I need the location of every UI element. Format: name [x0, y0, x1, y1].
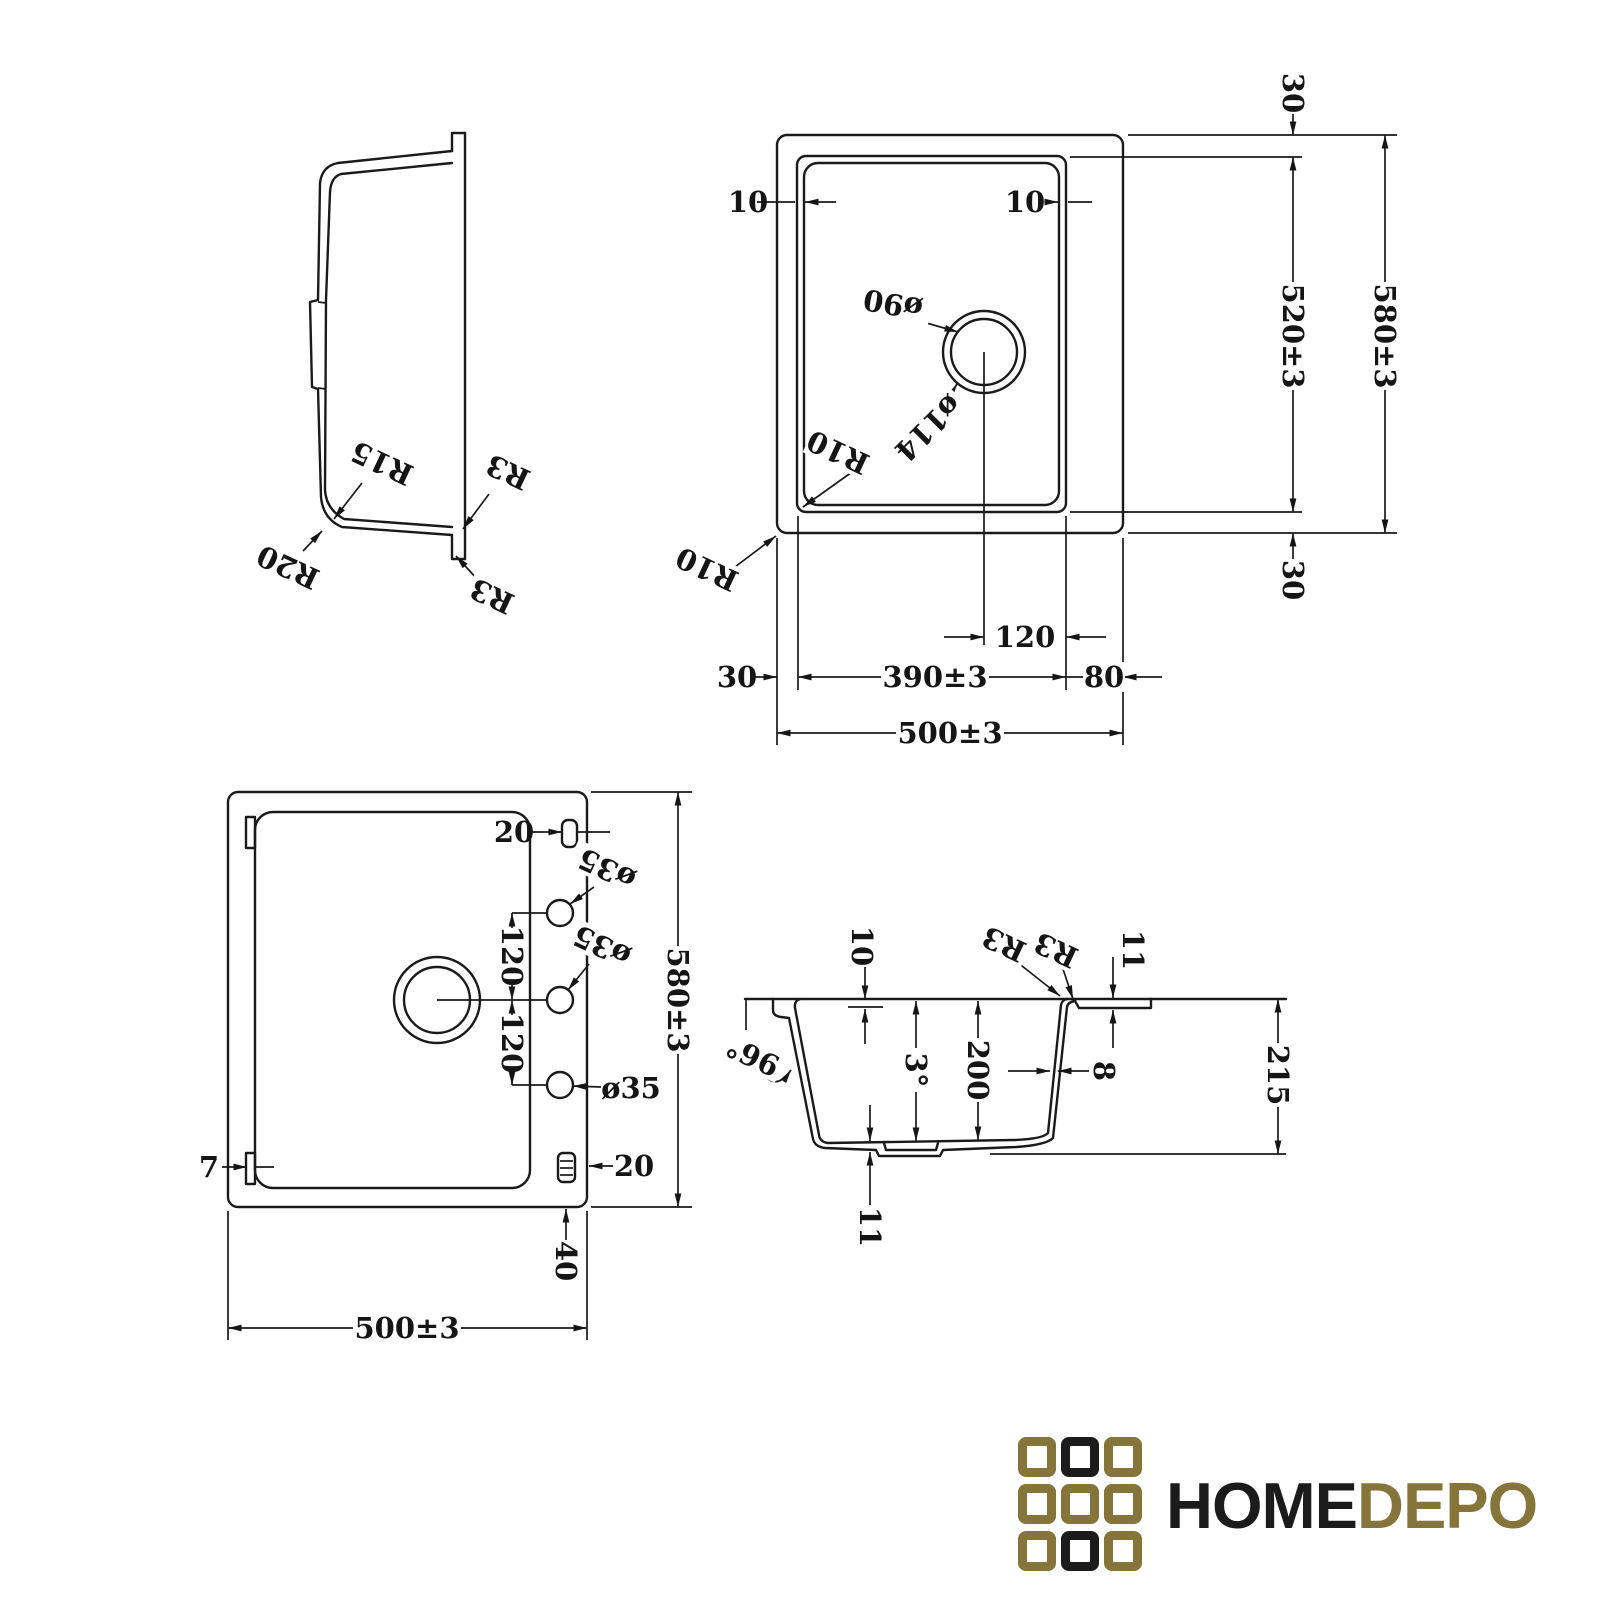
- dim-overall-depth-bottom: 580±3: [661, 792, 695, 1207]
- dim-tap-hole-mid: ø35: [560, 915, 643, 990]
- dim-overall-height: 215: [1261, 999, 1295, 1154]
- logo-text-home: HOME: [1166, 1469, 1357, 1542]
- logo-grid-cell-gold: [1061, 1484, 1099, 1524]
- top-lip-right-label: 10: [1005, 185, 1045, 219]
- overflow-slot-bottom: [558, 1153, 575, 1182]
- dim-drain-dia: ø90: [853, 281, 958, 332]
- section-outline: [745, 999, 1286, 1156]
- top-rim-top-label: 30: [1276, 73, 1310, 113]
- dim-ledge: 40: [549, 1209, 583, 1282]
- section-bowl-depth-label: 200: [961, 1040, 995, 1101]
- dim-r3-bottom: R3: [456, 556, 522, 622]
- view-bottom: 20 ø35 ø35 120 120 ø35: [195, 780, 705, 1355]
- top-flange-dia-label: ø114: [888, 388, 969, 469]
- side-r20-label: R20: [252, 538, 325, 596]
- section-rim-thickness-label: 11: [1116, 930, 1150, 970]
- clip-tab-bottom: [246, 1153, 255, 1184]
- top-drain-dia-label: ø90: [861, 282, 926, 326]
- dim-rim-bottom: 30: [1276, 533, 1310, 601]
- dim-r15: R15: [334, 434, 418, 519]
- dim-bowl-depth-section: 200: [961, 1001, 995, 1140]
- dim-drain-offset: 120: [944, 620, 1106, 654]
- top-overall-width-label: 500±3: [897, 716, 1002, 750]
- logo-grid-icon: [1018, 1437, 1142, 1573]
- bottom-hole-pitch-2-label: 120: [495, 1013, 529, 1074]
- logo-grid-cell-gold: [1104, 1531, 1142, 1571]
- side-profile-outline: [310, 133, 465, 559]
- view-top: 10 10 ø90 ø114 R10 R10: [695, 60, 1410, 775]
- dim-r3-top: R3: [463, 446, 538, 529]
- top-rim-bottom-label: 30: [1276, 560, 1310, 600]
- dim-wall-thickness: 8: [1008, 1057, 1121, 1085]
- dim-r20: R20: [252, 531, 325, 596]
- dim-hole-pitch-2: 120: [495, 1000, 529, 1085]
- section-lip-drop-label: 10: [845, 926, 879, 966]
- top-overall-depth-label: 580±3: [1368, 283, 1402, 388]
- top-rim-right-label: 80: [1084, 660, 1124, 694]
- logo-grid-cell-black: [1061, 1531, 1099, 1571]
- bottom-slot-bottom-label: 20: [614, 1149, 654, 1183]
- logo-wordmark: HOMEDEPO: [1166, 1468, 1537, 1543]
- section-draft-angle-label: 3°: [899, 1053, 933, 1088]
- logo: HOMEDEPO: [1018, 1437, 1537, 1573]
- side-r15-label: R15: [346, 434, 419, 492]
- top-view-extension-lines: [777, 135, 1397, 745]
- logo-grid-cell-gold: [1018, 1437, 1056, 1477]
- view-side-profile: R15 R20 R3 R3: [230, 100, 550, 640]
- dim-rim-thickness: 11: [1113, 929, 1150, 1048]
- bottom-overall-depth-label: 580±3: [661, 947, 695, 1052]
- dim-lip-left: 10: [728, 185, 836, 219]
- section-bottom-thickness-label: 11: [853, 1207, 887, 1247]
- bottom-view-outline: [228, 792, 587, 1207]
- top-rim-left-label: 30: [717, 660, 757, 694]
- dim-slot-bottom: 20: [589, 1149, 654, 1183]
- dim-bowl-width: 390±3: [798, 660, 1123, 694]
- logo-grid-cell-gold: [1104, 1484, 1142, 1524]
- dim-bottom-thickness: 11: [853, 1105, 887, 1248]
- dim-r10-outer: R10: [671, 536, 776, 598]
- bottom-slot-top-label: 20: [494, 815, 534, 849]
- dim-overall-width: 500±3: [777, 716, 1123, 750]
- dim-overall-width-bottom: 500±3: [228, 1311, 587, 1345]
- tap-hole-mid: [547, 987, 573, 1013]
- dim-r10-inner: R10: [802, 423, 875, 507]
- tap-hole-bottom: [547, 1072, 573, 1098]
- top-lip-left-label: 10: [728, 185, 768, 219]
- logo-grid-cell-gold: [1018, 1531, 1056, 1571]
- dim-clip: 7: [199, 1150, 274, 1184]
- bottom-tap-hole-bottom-label: ø35: [601, 1071, 661, 1105]
- logo-text-depo: DEPO: [1357, 1469, 1537, 1542]
- top-bowl-width-label: 390±3: [882, 660, 987, 694]
- bottom-overall-width-label: 500±3: [354, 1311, 459, 1345]
- clip-tab-top: [246, 817, 255, 848]
- dim-tap-hole-top: ø35: [565, 838, 648, 904]
- logo-grid-cell-gold: [1104, 1437, 1142, 1477]
- dim-bowl-depth: 520±3: [1276, 157, 1310, 512]
- section-overall-height-label: 215: [1261, 1045, 1295, 1106]
- dim-flange-dia: ø114: [885, 384, 971, 471]
- dim-lip-right: 10: [1005, 185, 1092, 219]
- dim-r3-inner: R3: [1026, 924, 1086, 999]
- dim-hole-pitch-1: 120: [495, 913, 529, 1000]
- top-drain-offset-label: 120: [995, 620, 1056, 654]
- dim-wall-angle: 96°: [718, 1027, 791, 1084]
- view-section: 10 R3 R3 11 96° 3°: [715, 900, 1305, 1260]
- sink-technical-drawing: R15 R20 R3 R3: [0, 0, 1600, 1600]
- top-bowl-depth-label: 520±3: [1276, 283, 1310, 388]
- dim-rim-left: 30: [717, 660, 777, 694]
- dim-rim-right: 80: [1083, 660, 1162, 694]
- section-wall-thickness-label: 8: [1087, 1061, 1121, 1081]
- top-r10-inner-label: R10: [802, 423, 875, 481]
- logo-grid-cell-gold: [1018, 1484, 1056, 1524]
- dim-draft-angle: 3°: [899, 1001, 933, 1141]
- logo-grid-cell-black: [1061, 1437, 1099, 1477]
- tap-hole-top: [547, 900, 573, 926]
- overflow-slot-top: [562, 820, 577, 847]
- dim-overall-depth: 580±3: [1368, 135, 1402, 533]
- dim-rim-top: 30: [1276, 72, 1310, 135]
- top-r10-outer-label: R10: [671, 540, 744, 598]
- bottom-ledge-label: 40: [549, 1241, 583, 1281]
- bottom-hole-pitch-1-label: 120: [495, 926, 529, 987]
- dim-lip-drop: 10: [845, 925, 879, 1044]
- bottom-clip-label: 7: [199, 1150, 219, 1184]
